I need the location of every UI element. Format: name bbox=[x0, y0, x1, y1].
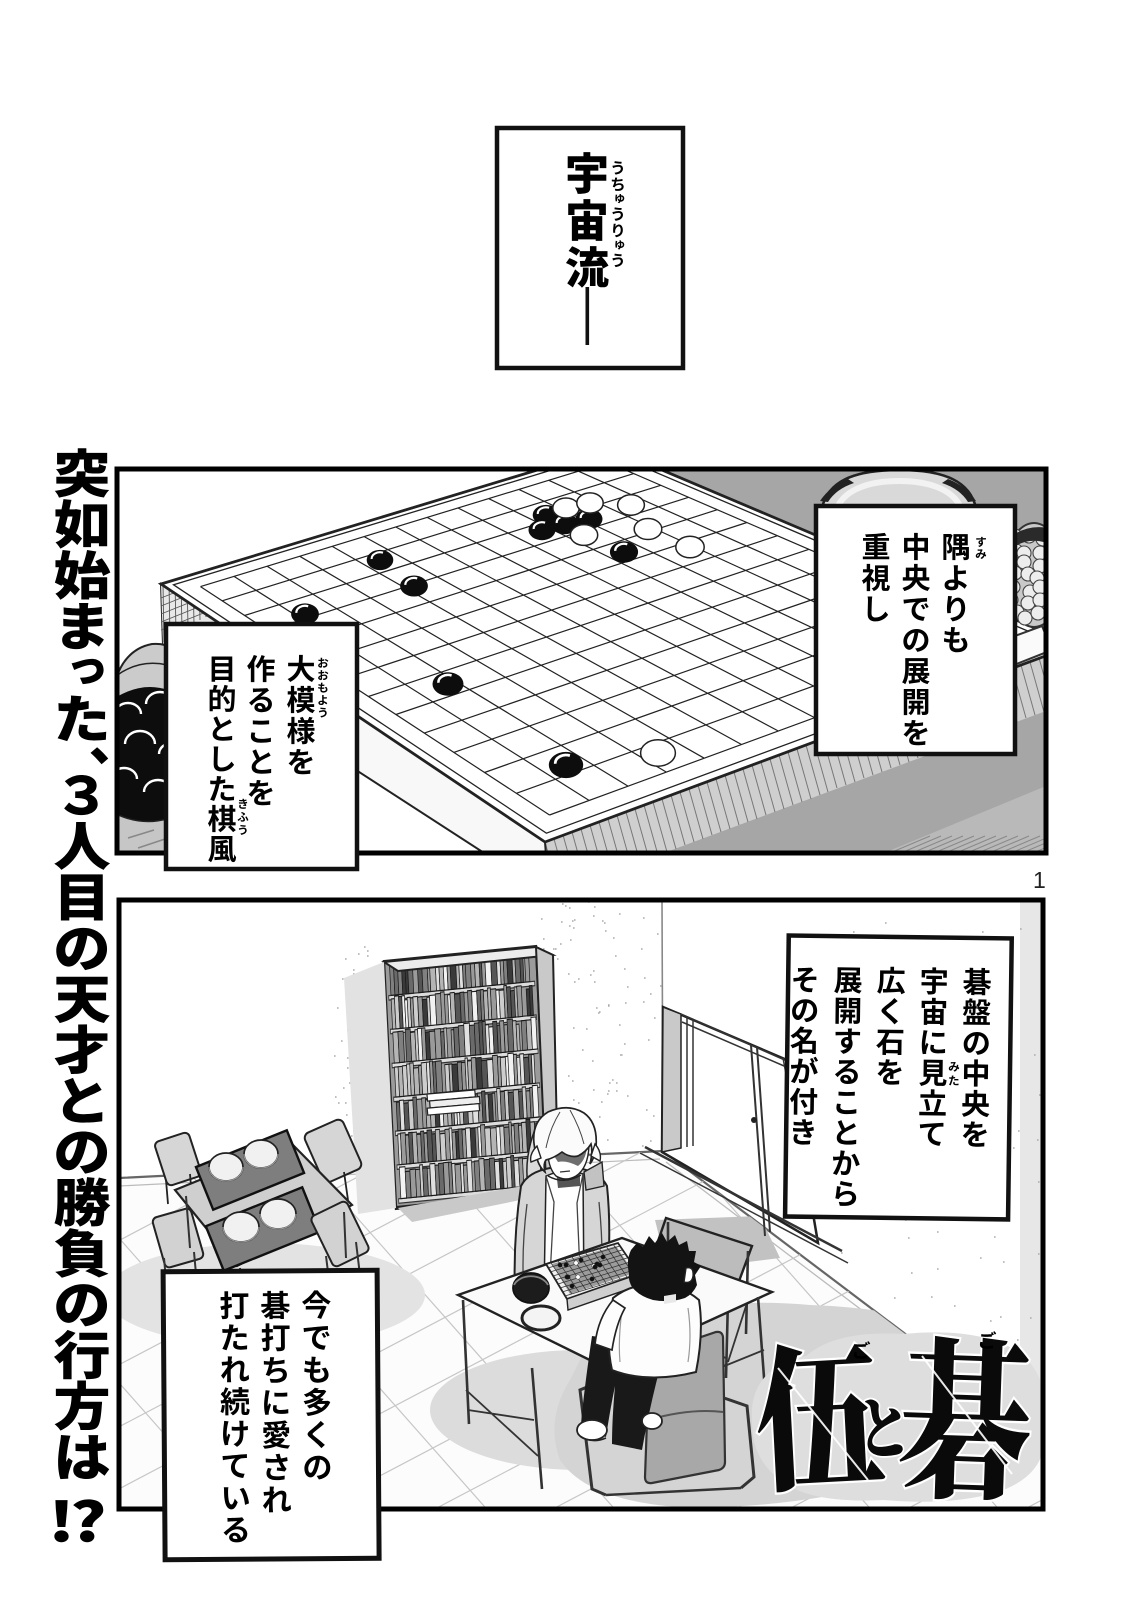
svg-text:1: 1 bbox=[1033, 867, 1046, 893]
